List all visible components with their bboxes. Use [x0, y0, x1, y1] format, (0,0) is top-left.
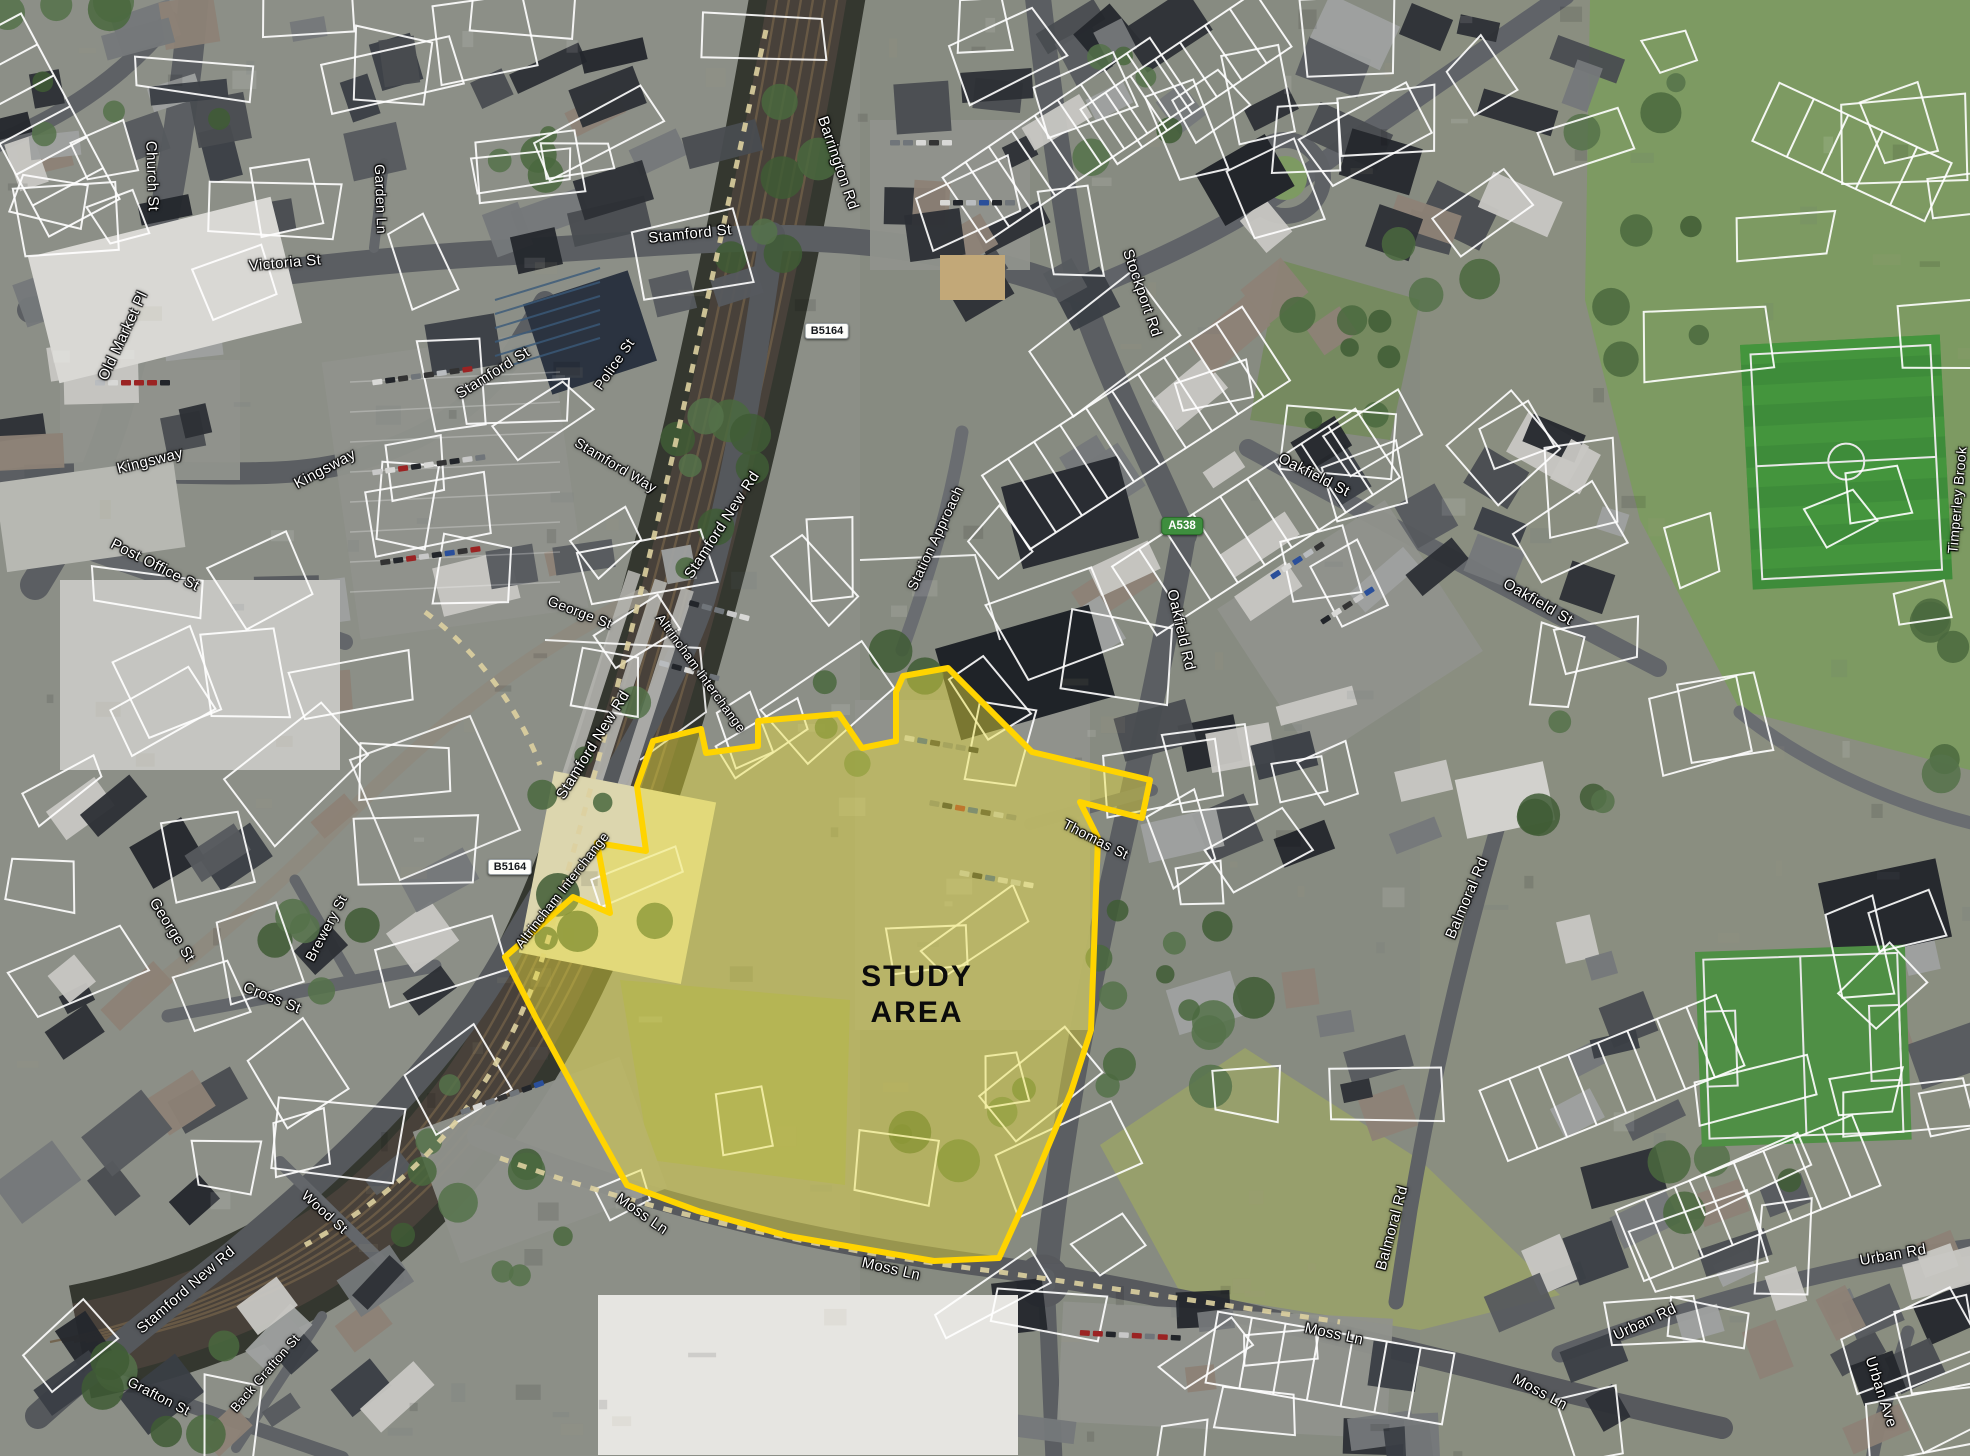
aerial-imagery: [0, 0, 1970, 1456]
map-root: Church StVictoria StOld Market PlGarden …: [0, 0, 1970, 1456]
